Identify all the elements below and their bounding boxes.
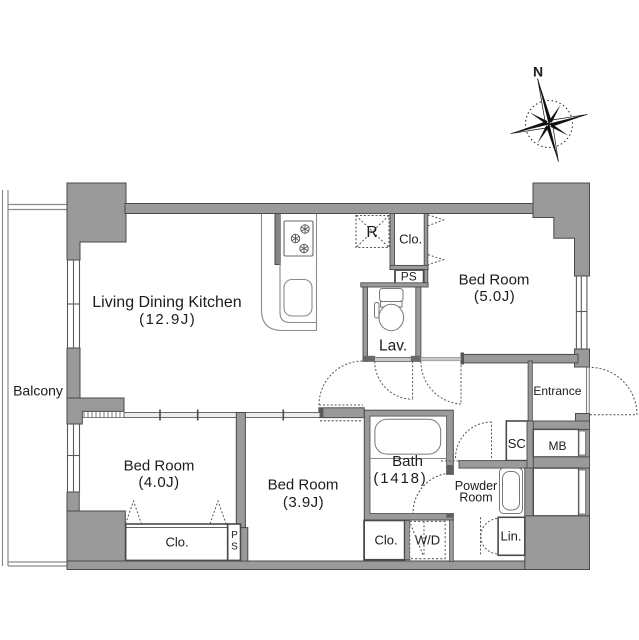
svg-text:Bed Room: Bed Room [459,271,530,288]
svg-text:Balcony: Balcony [13,382,63,398]
svg-text:(12.9J): (12.9J) [139,311,196,328]
svg-text:Lin.: Lin. [501,529,522,544]
svg-text:Bed Room: Bed Room [268,477,339,494]
svg-text:Entrance: Entrance [533,384,581,398]
svg-text:Room: Room [459,491,492,505]
svg-text:(3.9J): (3.9J) [283,494,324,511]
svg-text:(1418): (1418) [373,470,427,487]
svg-text:(4.0J): (4.0J) [138,474,179,491]
svg-text:Clo.: Clo. [399,232,422,247]
svg-text:PS: PS [401,270,417,284]
svg-text:Clo.: Clo. [165,535,188,550]
svg-text:S: S [231,542,238,553]
svg-text:MB: MB [549,439,567,453]
svg-text:SC: SC [508,436,526,451]
svg-text:R: R [366,224,377,241]
svg-text:Living Dining Kitchen: Living Dining Kitchen [92,294,241,311]
svg-text:W/D: W/D [415,533,440,548]
svg-text:P: P [231,530,238,541]
svg-text:N: N [533,64,543,80]
svg-text:Bath: Bath [392,453,423,470]
svg-text:Clo.: Clo. [374,533,397,548]
svg-text:Lav.: Lav. [379,338,407,355]
svg-text:Bed Room: Bed Room [124,457,195,474]
svg-text:(5.0J): (5.0J) [474,288,515,305]
